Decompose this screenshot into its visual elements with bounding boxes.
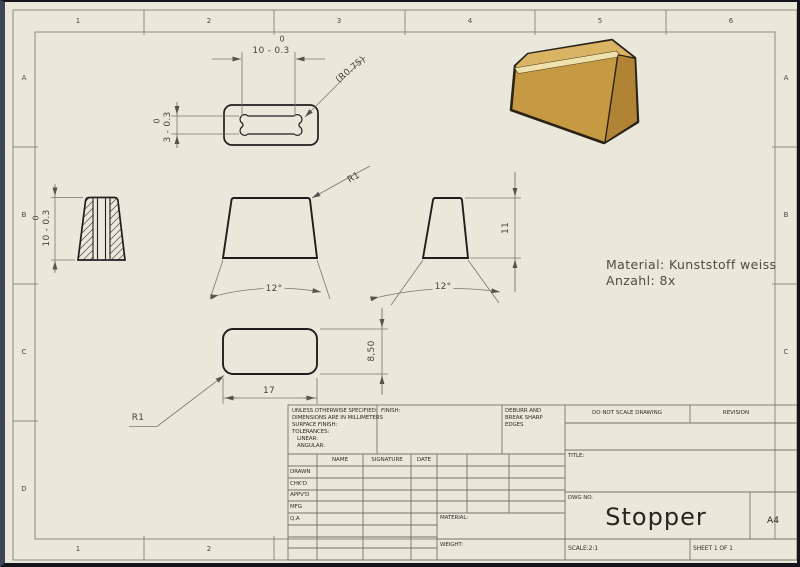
zone-right-c: C [784,348,789,356]
zone-right-b: B [784,211,789,219]
tb-title-label: TITLE: [568,453,584,459]
zone-top-6: 6 [729,17,733,25]
tb-debur-line2: BREAK SHARP [505,415,543,421]
tb-debur-line3: EDGES [505,422,523,428]
bone-slot [240,115,302,136]
zone-top-2: 2 [207,17,211,25]
paper-size-label: A4 [767,516,779,526]
drawing-canvas [5,2,800,567]
tb-tolerance-line4: TOLERANCES: [292,429,329,435]
dim-side-height-upper-tol: 0 [32,215,41,220]
tb-row-drawn: DRAWN [290,469,310,475]
tb-scale-label: SCALE:2:1 [568,545,598,552]
dim-right-angle: 12° [433,282,454,292]
dim-side-height: 10 - 0.3 [42,209,52,246]
zone-left-a: A [22,74,27,82]
dim-slot-height: 3 - 0.3 [163,111,173,142]
tb-tolerance-line1: UNLESS OTHERWISE SPECIFIED: [292,408,377,414]
dim-bottom-radius: R1 [132,413,145,423]
zone-left-c: C [22,348,27,356]
zone-top-5: 5 [598,17,602,25]
tb-finish-label: FINISH: [381,408,400,414]
dim-top-width-upper-tol: 0 [279,35,284,44]
tb-row-qa: Q.A [290,516,300,522]
section-view [78,198,125,261]
zone-left-b: B [22,211,27,219]
dim-front-angle: 12° [264,284,285,294]
tb-tolerance-line2: DIMENSIONS ARE IN MILLIMETERS [292,415,383,421]
tb-row-appvd: APPV'D [290,492,309,498]
isometric-view [511,40,638,143]
tb-tolerance-line5: LINEAR: [297,436,318,442]
zone-top-1: 1 [76,17,80,25]
tb-tolerance-line6: ANGULAR: [297,443,325,449]
zone-top-3: 3 [337,17,341,25]
zone-left-d: D [21,485,26,493]
tb-col-name: NAME [332,457,348,463]
dim-right-height: 11 [501,222,511,234]
material-note: Material: Kunststoff weiss [606,257,776,272]
drawing-sheet: 1 2 3 4 5 6 1 2 A B C D A B C 0 10 - 0.3… [0,0,800,567]
zone-right-a: A [784,74,789,82]
tb-dwg-label: DWG NO. [568,495,593,501]
drawing-title: Stopper [605,503,706,531]
bottom-view [223,329,317,374]
dim-slot-height-upper-tol: 0 [153,118,162,123]
tb-revision-label: REVISION [723,410,749,416]
quantity-note: Anzahl: 8x [606,273,676,288]
tb-debur-line1: DEBURR AND [505,408,541,414]
zone-top-4: 4 [468,17,472,25]
right-view [423,198,468,258]
tb-row-chkd: CHK'D [290,481,307,487]
tb-weight-label: WEIGHT: [440,542,463,548]
tb-tolerance-line3: SURFACE FINISH: [292,422,337,428]
tb-col-date: DATE [417,457,431,463]
zone-bottom-1: 1 [76,545,80,553]
dim-bottom-height: 8,50 [367,340,377,361]
dim-bottom-length: 17 [263,386,275,396]
tb-do-not-scale: DO NOT SCALE DRAWING [592,410,662,416]
zone-bottom-2: 2 [207,545,211,553]
title-block-lines [288,405,797,560]
front-view [223,198,317,258]
tb-row-mfg: MFG [290,504,302,510]
top-view [224,105,318,145]
tb-sheet-label: SHEET 1 OF 1 [693,545,733,552]
front-view-dims [210,166,370,299]
tb-col-signature: SIGNATURE [371,457,403,463]
tb-material-label: MATERIAL: [440,515,468,521]
dim-top-width: 10 - 0.3 [252,46,289,56]
